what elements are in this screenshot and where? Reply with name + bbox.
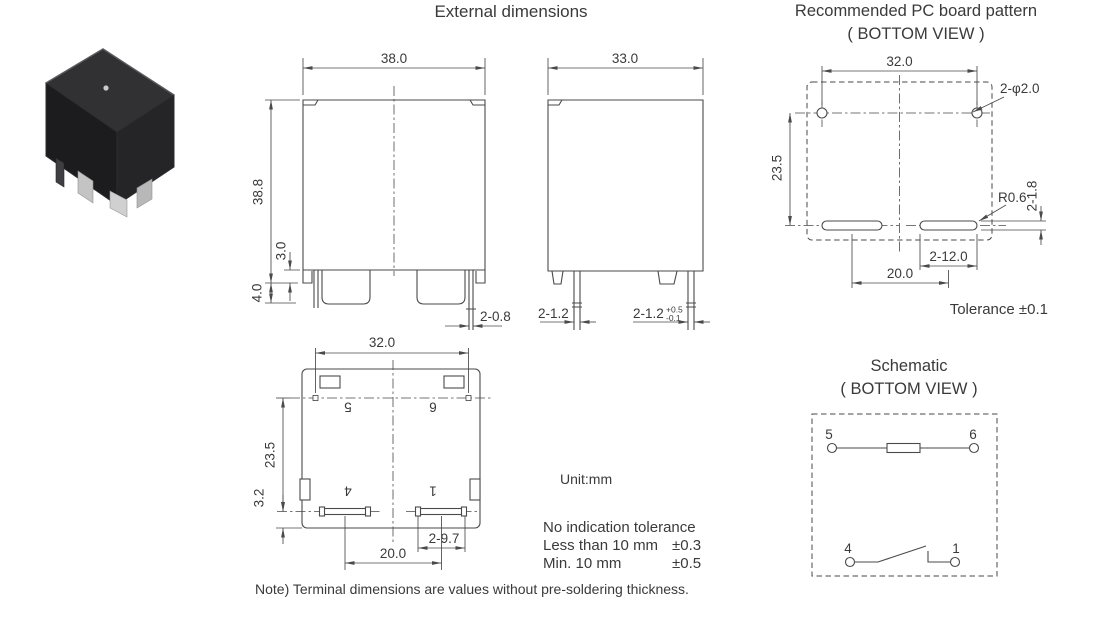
schematic-pin-5: 5 (825, 427, 833, 442)
coil-pin-section (466, 396, 471, 401)
pcb-pattern-title: Recommended PC board pattern (795, 2, 1037, 20)
mounting-hole (972, 108, 982, 118)
bottom-pin-span-dim: 32.0 (369, 335, 395, 350)
tolerance-row1-label: Less than 10 mm (543, 537, 658, 554)
relay-top-vent-dot (103, 85, 108, 90)
contact-terminal-section (322, 509, 368, 515)
bottom-pitch-dim: 20.0 (380, 546, 406, 561)
bottom-view-vent-hole (320, 376, 340, 388)
footnote: Note) Terminal dimensions are values wit… (255, 581, 689, 597)
mounting-hole (817, 108, 827, 118)
front-standoff-dim: 3.0 (274, 242, 289, 261)
schematic-pin-1: 1 (952, 541, 960, 556)
front-terminal-height-dim: 4.0 (250, 284, 265, 303)
pin-label-5: 5 (344, 400, 352, 415)
pcb-slot-width-dim: 2-12.0 (929, 249, 967, 264)
front-view: 38.0 38.8 3.0 4.0 2-0.8 (250, 51, 511, 330)
switch-contact-symbol (855, 546, 951, 562)
relay-product-photo (46, 49, 174, 217)
tolerance-title: No indication tolerance (543, 519, 696, 536)
external-dimensions-title: External dimensions (434, 2, 587, 21)
bottom-view: 32.0 5 6 4 1 23.5 3.2 2-9.7 20.0 (252, 335, 493, 570)
pcb-pattern-view: 32.0 2-φ2.0 23.5 R0.6 2-1.8 2-12.0 20.0 … (770, 54, 1049, 318)
schematic-view: 5 6 4 1 (812, 414, 997, 576)
coil-symbol (887, 444, 920, 453)
tolerance-row2-label: Min. 10 mm (543, 555, 621, 572)
schematic-title: Schematic (870, 357, 947, 375)
pcb-width-dim: 32.0 (886, 54, 912, 69)
relay-terminal-pin (56, 158, 64, 187)
relay-datasheet-page: External dimensions Recommended PC board… (0, 0, 1095, 626)
contact-terminal-section (418, 509, 464, 515)
front-height-dim: 38.8 (251, 179, 266, 205)
bottom-slot-width-dim: 2-9.7 (429, 531, 460, 546)
pin-label-4: 4 (344, 484, 352, 499)
bottom-terminal-offset-dim: 3.2 (252, 489, 267, 508)
pcb-holes-dim: 2-φ2.0 (1000, 81, 1040, 96)
terminal-slot (822, 221, 882, 230)
pcb-pattern-subtitle: ( BOTTOM VIEW ) (847, 25, 984, 43)
pin-label-6: 6 (429, 400, 437, 415)
coil-pin-section (313, 396, 318, 401)
schematic-pin-6: 6 (969, 427, 977, 442)
front-pin-width-dim: 2-0.8 (480, 309, 511, 324)
side-view: 33.0 2-1.2 2-1.2 +0.5 -0.1 (538, 51, 710, 330)
side-pin-right-tol-lower: -0.1 (666, 313, 681, 323)
pcb-tolerance-note: Tolerance ±0.1 (950, 301, 1048, 318)
side-pin-right-dim: 2-1.2 (633, 306, 664, 321)
tolerance-row1-value: ±0.3 (672, 537, 701, 554)
pcb-corner-radius-dim: R0.6 (998, 190, 1027, 205)
unit-note: Unit:mm (560, 471, 612, 487)
schematic-subtitle: ( BOTTOM VIEW ) (840, 380, 977, 398)
bottom-view-side-hole (300, 479, 310, 500)
pin-label-1: 1 (429, 484, 437, 499)
pcb-slot-height-dim: 2-1.8 (1025, 181, 1040, 212)
schematic-pin-4: 4 (844, 541, 852, 556)
bottom-view-vent-hole (444, 376, 464, 388)
bottom-height-dim: 23.5 (263, 442, 278, 468)
side-pin-left-dim: 2-1.2 (538, 306, 569, 321)
front-width-dim: 38.0 (381, 51, 407, 66)
datasheet-drawing: External dimensions Recommended PC board… (0, 0, 1095, 626)
terminal-slot (920, 221, 977, 230)
tolerance-row2-value: ±0.5 (672, 555, 701, 572)
pcb-height-dim: 23.5 (770, 155, 785, 181)
side-width-dim: 33.0 (612, 51, 638, 66)
bottom-view-side-hole (470, 479, 480, 500)
pcb-pitch-dim: 20.0 (887, 266, 913, 281)
